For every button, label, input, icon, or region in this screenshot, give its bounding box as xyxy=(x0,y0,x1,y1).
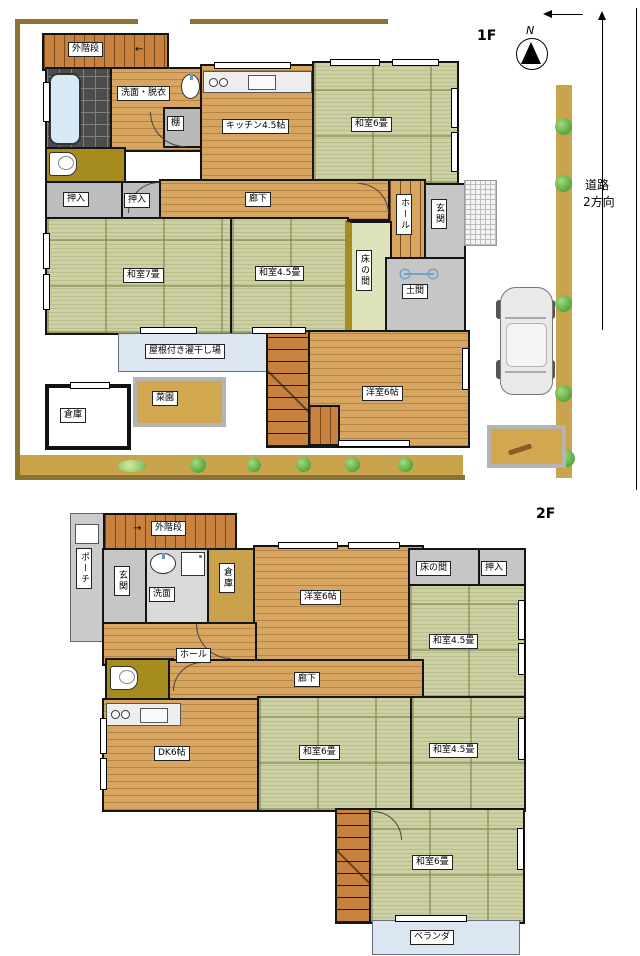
window xyxy=(252,327,306,334)
stairs-landing-1f xyxy=(308,405,340,446)
window xyxy=(100,758,107,790)
window xyxy=(462,348,469,390)
closet-b-1f-label: 押入 xyxy=(124,193,150,208)
window xyxy=(43,274,50,310)
kitchen-1f-label: キッチン4.5帖 xyxy=(222,119,289,134)
site-border-top-left xyxy=(15,19,138,24)
kitchen-counter-2f xyxy=(106,703,181,726)
washroom-2f-label: 洗面 xyxy=(149,587,175,602)
window xyxy=(518,718,525,760)
road-edge-line xyxy=(636,8,637,490)
outer-stairs-1f-arrow: ← xyxy=(135,45,143,55)
western6-1f-label: 洋室6帖 xyxy=(362,386,403,401)
hall-2f-label: ホール xyxy=(176,648,211,663)
corridor-2f-label: 廊下 xyxy=(294,672,320,687)
washbasin-2f-icon xyxy=(150,553,176,574)
dk-2f-label: DK6帖 xyxy=(154,746,190,761)
floor2-title: 2F xyxy=(536,506,555,522)
bush-icon xyxy=(118,460,146,472)
toilet-1f-icon xyxy=(49,152,77,176)
sink-icon xyxy=(248,75,276,90)
burner-icon xyxy=(111,710,120,719)
outer-stairs-2f-label: 外階段 xyxy=(151,521,186,536)
closet-a-1f-label: 押入 xyxy=(63,192,89,207)
kitchen-counter-1f xyxy=(203,71,312,93)
tatami7-1f-label: 和室7畳 xyxy=(123,268,164,283)
window xyxy=(278,542,338,549)
car-roof xyxy=(506,323,547,367)
tatami45-1f-label: 和室4.5畳 xyxy=(255,266,304,281)
window xyxy=(517,828,524,870)
porch-2f-label: ポーチ xyxy=(76,548,92,589)
site-border-top-right xyxy=(190,19,388,24)
compass-needle-icon xyxy=(521,42,541,64)
shed-door xyxy=(70,382,110,389)
sink-icon xyxy=(140,708,168,723)
tatami6-mid-2f-label: 和室6畳 xyxy=(299,745,340,760)
floor-plan-canvas: 道路 2方向 1F N 外階段 ← 洗面・脱衣 棚 キッチン4.5帖 和室6畳 … xyxy=(0,0,640,956)
hall-1f-label: ホール xyxy=(396,194,412,235)
shelf-1f-label: 棚 xyxy=(167,116,184,131)
stairs-1f xyxy=(266,330,312,448)
outer-stairs-2f-arrow: → xyxy=(133,524,141,534)
window xyxy=(100,718,107,754)
corridor-1f-label: 廊下 xyxy=(245,192,271,207)
car-windshield-line xyxy=(505,317,546,319)
western6-2f-label: 洋室6帖 xyxy=(300,590,341,605)
storage-2f-label: 倉庫 xyxy=(219,563,235,593)
window xyxy=(518,643,525,675)
bush-icon xyxy=(190,457,206,473)
tap-icon xyxy=(190,74,193,80)
road-label-line1: 道路 xyxy=(585,178,609,193)
toilet-2f-icon xyxy=(110,666,138,690)
storage-1f-label: 倉庫 xyxy=(60,408,86,423)
bush-icon xyxy=(555,175,572,192)
entrance-porch-hatch-1f xyxy=(464,180,497,246)
burner-icon xyxy=(219,78,228,87)
storage-shed-1f xyxy=(45,384,131,450)
bush-icon xyxy=(345,457,360,472)
road-label-line2: 2方向 xyxy=(583,195,615,210)
porch-step xyxy=(75,524,99,544)
entrance-1f-label: 玄関 xyxy=(431,199,447,229)
appliance-dot xyxy=(199,555,202,558)
bush-icon xyxy=(247,458,261,472)
window xyxy=(451,132,458,172)
window xyxy=(330,59,380,66)
site-border-left xyxy=(15,19,20,480)
washroom-1f-label: 洗面・脱衣 xyxy=(117,86,170,101)
garden-path-right xyxy=(556,85,572,478)
tokonoma-1f-label: 床の間 xyxy=(356,250,372,291)
window xyxy=(395,915,467,922)
closet-2f-label: 押入 xyxy=(481,561,507,576)
window xyxy=(140,327,197,334)
bush-icon xyxy=(555,385,572,402)
outer-stairs-1f xyxy=(42,33,169,71)
road-direction-line-vertical xyxy=(602,20,603,330)
road-direction-line-horizontal xyxy=(551,14,583,15)
bush-icon xyxy=(555,295,572,312)
tokonoma-2f-label: 床の間 xyxy=(416,561,451,576)
entrance-2f-label: 玄関 xyxy=(114,566,130,596)
garden-path-bottom xyxy=(20,455,463,475)
bush-icon xyxy=(398,457,413,472)
bush-icon xyxy=(555,118,572,135)
drying-area-1f-label: 屋根付き濯干し場 xyxy=(145,344,225,359)
tap-icon xyxy=(162,553,165,559)
site-border-bottom xyxy=(15,475,465,480)
window xyxy=(214,62,291,69)
tatami6-1f-label: 和室6畳 xyxy=(351,117,392,132)
burner-icon xyxy=(209,78,218,87)
toilet-bowl-icon xyxy=(58,156,74,170)
veranda-2f-label: ベランダ xyxy=(410,930,454,945)
laundry-appliance-icon xyxy=(181,552,205,576)
tatami6-low-2f-label: 和室6畳 xyxy=(412,855,453,870)
doma-1f-label: 土間 xyxy=(402,284,428,299)
window xyxy=(338,440,410,447)
car-rear-line xyxy=(505,371,546,373)
tatami45-top-2f-label: 和室4.5畳 xyxy=(429,634,478,649)
tatami45-mid-2f-label: 和室4.5畳 xyxy=(429,743,478,758)
bicycle-icon xyxy=(398,267,440,281)
window xyxy=(518,600,525,640)
window xyxy=(348,542,400,549)
bush-icon xyxy=(296,457,311,472)
road-arrow-up-icon xyxy=(598,11,606,20)
garden-1f-label: 菜園 xyxy=(152,391,178,406)
washbasin-1f-icon xyxy=(181,74,200,99)
window xyxy=(43,233,50,269)
vegetable-garden-1f xyxy=(133,377,226,427)
western6-2f xyxy=(253,545,424,665)
window xyxy=(392,59,439,66)
floor1-title: 1F xyxy=(477,28,496,44)
burner-icon xyxy=(121,710,130,719)
bathtub-icon xyxy=(49,73,81,145)
toilet-bowl-icon xyxy=(119,670,135,684)
compass-n-label: N xyxy=(526,24,534,37)
outer-stairs-1f-label: 外階段 xyxy=(68,42,103,57)
road-arrow-left-icon xyxy=(543,10,552,18)
window xyxy=(451,88,458,128)
window xyxy=(43,82,50,122)
